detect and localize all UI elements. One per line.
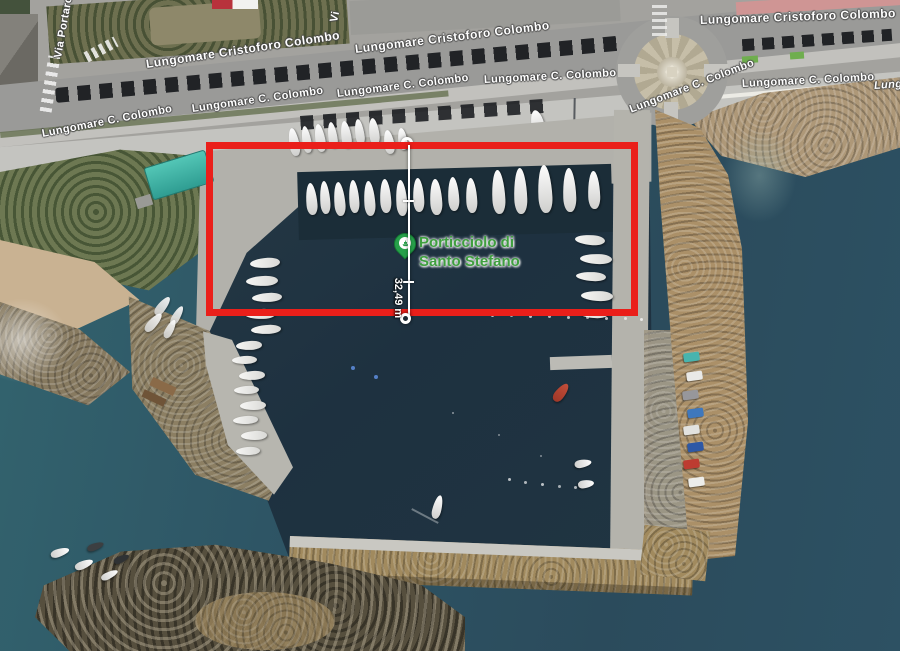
corner-rocks <box>640 525 711 582</box>
medallion-star-icon <box>667 67 677 77</box>
poi-label-line1: Porticciolo di <box>419 233 520 252</box>
boat <box>50 546 71 559</box>
measurement-tick <box>403 281 414 283</box>
mooring-buoy-row <box>508 478 511 481</box>
poi-label[interactable]: Porticciolo di Santo Stefano <box>419 233 520 271</box>
stub-dock <box>550 355 612 370</box>
mooring-buoy <box>351 366 355 370</box>
poi-label-line2: Santo Stefano <box>419 252 520 271</box>
road-label: Lungo <box>874 78 900 92</box>
zebra-crossing <box>652 4 667 36</box>
boulder-tan-patch <box>195 592 335 650</box>
mooring-buoy <box>374 375 378 379</box>
mooring-buoy <box>452 412 454 414</box>
measurement-tick <box>403 200 414 202</box>
satellite-map[interactable]: Via Portaro Lungomare Cristoforo Colombo… <box>0 0 900 651</box>
road-label: Vi <box>328 10 342 23</box>
measurement-label: 32,49 m <box>392 266 404 330</box>
surf-foam <box>0 298 70 383</box>
roundabout-spoke <box>665 18 679 38</box>
measurement-line <box>408 145 410 322</box>
annotation-rectangle <box>206 142 638 316</box>
planter-box <box>790 52 804 60</box>
roundabout-spoke <box>618 64 640 77</box>
billboard <box>212 0 258 9</box>
boat-dark <box>86 540 104 552</box>
